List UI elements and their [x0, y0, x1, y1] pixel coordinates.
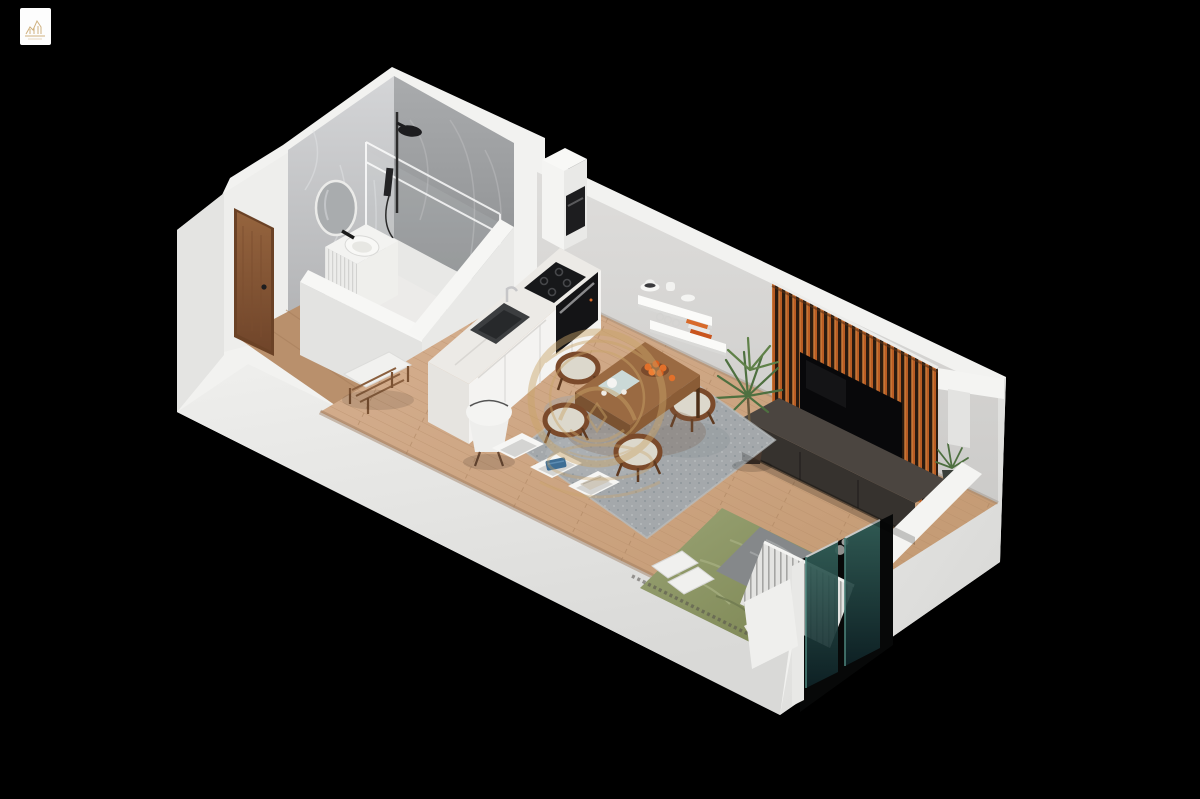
- bowl: [681, 295, 695, 302]
- screenshot-root: [0, 0, 1200, 799]
- teapot: [607, 378, 617, 388]
- glass-pane-1: [806, 541, 838, 688]
- canister: [666, 282, 675, 291]
- entry-door: [234, 208, 274, 356]
- round-mirror: [316, 181, 356, 235]
- door-handle: [261, 284, 266, 289]
- door-panel: [237, 212, 271, 351]
- tall-cabinet: [542, 148, 587, 250]
- floorplan-render: [0, 0, 1200, 799]
- corner-logo: [20, 8, 51, 45]
- glass-pane-2: [845, 520, 880, 666]
